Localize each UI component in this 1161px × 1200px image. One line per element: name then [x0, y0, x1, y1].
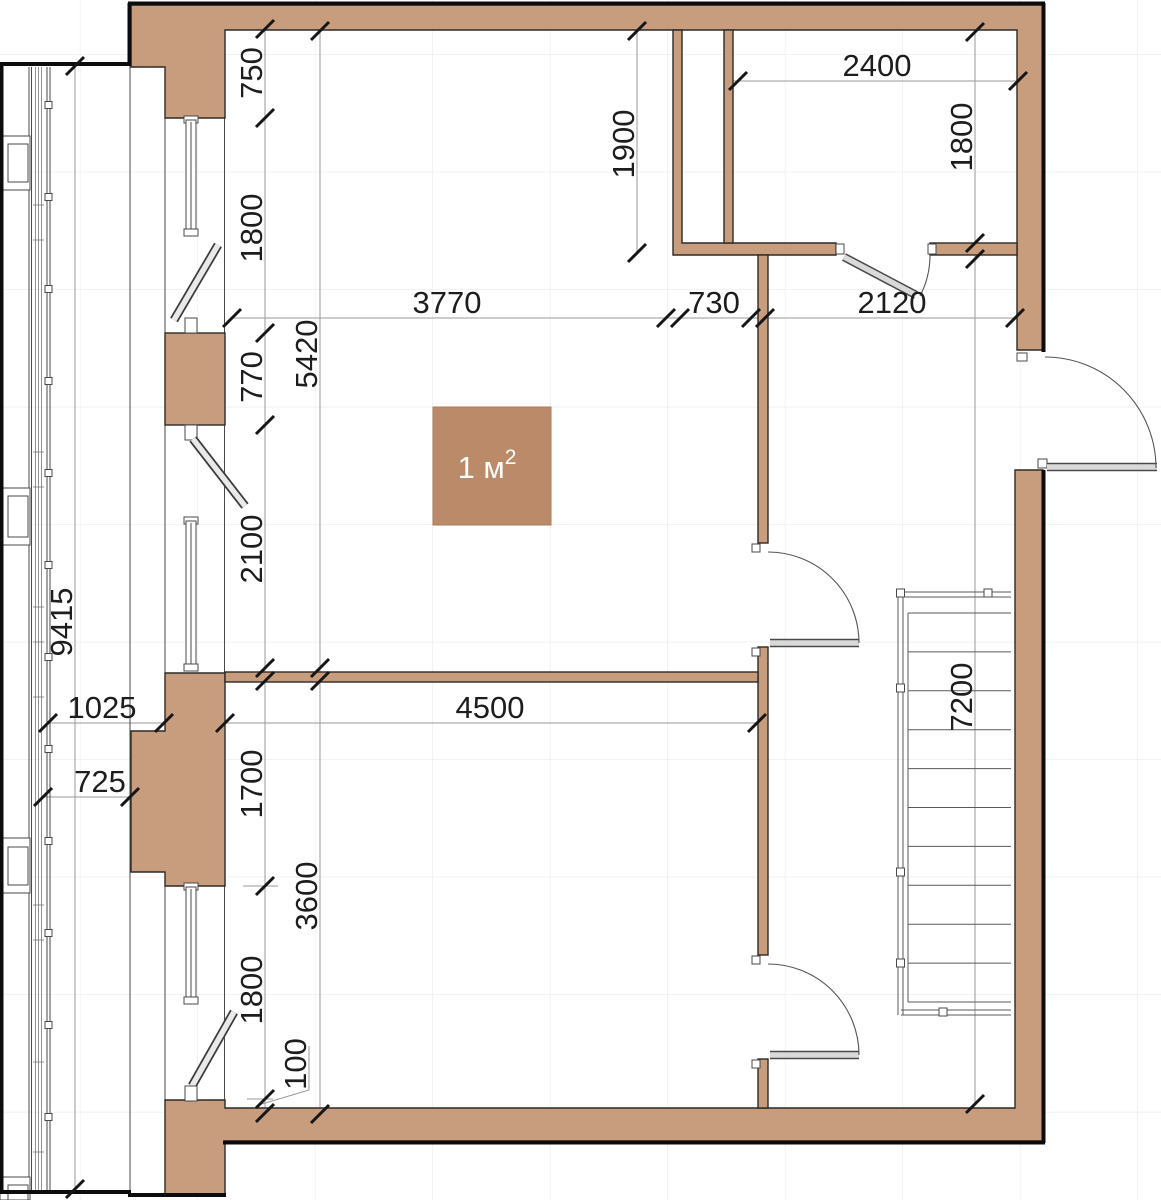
dim-2100: 2100: [234, 515, 269, 584]
floor-plan-canvas: 1 м2: [0, 0, 1161, 1200]
dim-1800-left-lower: 1800: [234, 956, 269, 1025]
window-1-jamb: [185, 318, 197, 333]
dim-2400: 2400: [843, 48, 912, 83]
dim-750: 750: [234, 47, 269, 99]
area-reference: 1 м2: [433, 407, 551, 525]
floor-plan-page: 1 м2: [0, 0, 1161, 1200]
grid: [0, 0, 1161, 1200]
interior-wall-corridor-middle: [758, 647, 768, 955]
interior-wall-horizontal: [225, 672, 758, 682]
pier-left-upper: [165, 333, 225, 425]
dim-770: 770: [234, 351, 269, 403]
area-label-sup: 2: [505, 446, 517, 469]
dim-730: 730: [688, 285, 740, 320]
dim-9415: 9415: [44, 588, 79, 657]
dim-5420: 5420: [289, 320, 324, 389]
dim-3600: 3600: [289, 862, 324, 931]
dim-100: 100: [278, 1038, 313, 1090]
dim-1700: 1700: [234, 750, 269, 819]
area-label-main: 1 м: [458, 450, 505, 485]
dim-2120: 2120: [858, 285, 927, 320]
dim-725: 725: [74, 764, 126, 799]
dim-4500: 4500: [456, 690, 525, 725]
interior-wall-shaft-right: [724, 30, 733, 243]
dim-1025: 1025: [68, 690, 137, 725]
dim-1900: 1900: [606, 110, 641, 179]
dim-1800-top-right: 1800: [944, 103, 979, 172]
dim-7200: 7200: [944, 663, 979, 732]
window-3-jamb: [185, 1086, 197, 1101]
dim-1800-left-upper: 1800: [234, 194, 269, 263]
dim-3770: 3770: [413, 285, 482, 320]
interior-wall-corridor-upper: [758, 255, 768, 543]
